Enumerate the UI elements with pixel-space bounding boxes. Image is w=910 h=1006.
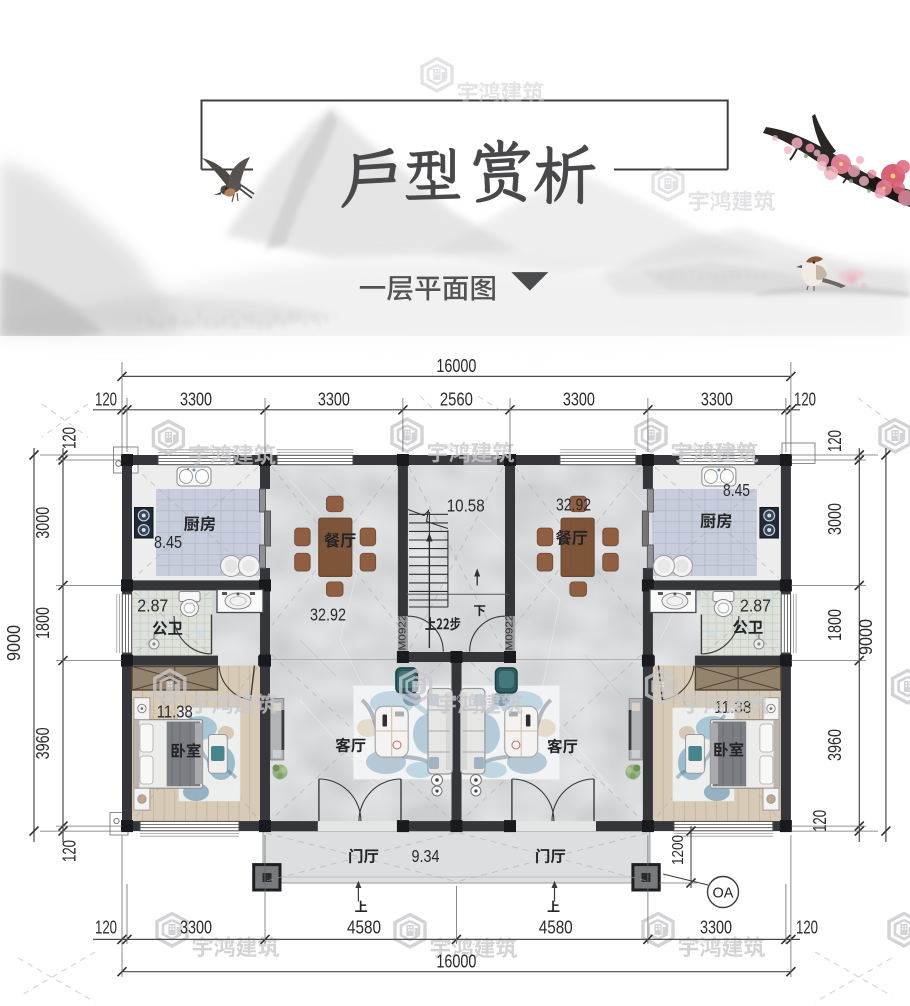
svg-text:11.38: 11.38 (157, 702, 193, 722)
svg-text:16000: 16000 (436, 952, 476, 972)
svg-text:10.58: 10.58 (447, 496, 485, 516)
svg-text:3000: 3000 (33, 507, 53, 539)
svg-text:3300: 3300 (700, 918, 732, 938)
svg-text:3300: 3300 (701, 390, 733, 410)
svg-text:3300: 3300 (563, 390, 595, 410)
svg-text:3960: 3960 (825, 729, 845, 761)
svg-text:4580: 4580 (347, 918, 381, 938)
svg-text:8.45: 8.45 (154, 532, 182, 552)
svg-text:3300: 3300 (180, 918, 212, 938)
svg-text:2.87: 2.87 (740, 595, 771, 615)
svg-text:9000: 9000 (4, 625, 24, 661)
svg-text:1800: 1800 (825, 609, 845, 641)
svg-text:M0922: M0922 (396, 614, 408, 650)
svg-text:120: 120 (796, 918, 818, 938)
svg-text:8.45: 8.45 (723, 480, 750, 500)
svg-text:4580: 4580 (539, 918, 573, 938)
svg-text:2560: 2560 (440, 390, 473, 410)
svg-text:120: 120 (95, 390, 117, 410)
svg-text:120: 120 (794, 390, 816, 410)
svg-text:1800: 1800 (33, 607, 53, 639)
svg-text:120: 120 (810, 810, 830, 832)
svg-text:3300: 3300 (318, 390, 350, 410)
svg-text:120: 120 (60, 427, 80, 449)
svg-text:9.34: 9.34 (412, 846, 440, 866)
svg-text:OA: OA (713, 886, 734, 902)
svg-text:3000: 3000 (825, 503, 845, 535)
svg-text:120: 120 (95, 918, 117, 938)
svg-text:2.87: 2.87 (137, 596, 168, 616)
svg-text:120: 120 (60, 840, 80, 862)
svg-text:M0922: M0922 (504, 614, 516, 650)
svg-text:32.92: 32.92 (556, 495, 591, 515)
svg-text:16000: 16000 (436, 356, 476, 376)
svg-text:120: 120 (825, 430, 845, 452)
svg-text:1200: 1200 (670, 835, 687, 865)
svg-text:3300: 3300 (180, 390, 212, 410)
svg-text:3960: 3960 (33, 727, 53, 759)
svg-text:32.92: 32.92 (310, 604, 346, 624)
svg-text:9000: 9000 (856, 619, 876, 655)
